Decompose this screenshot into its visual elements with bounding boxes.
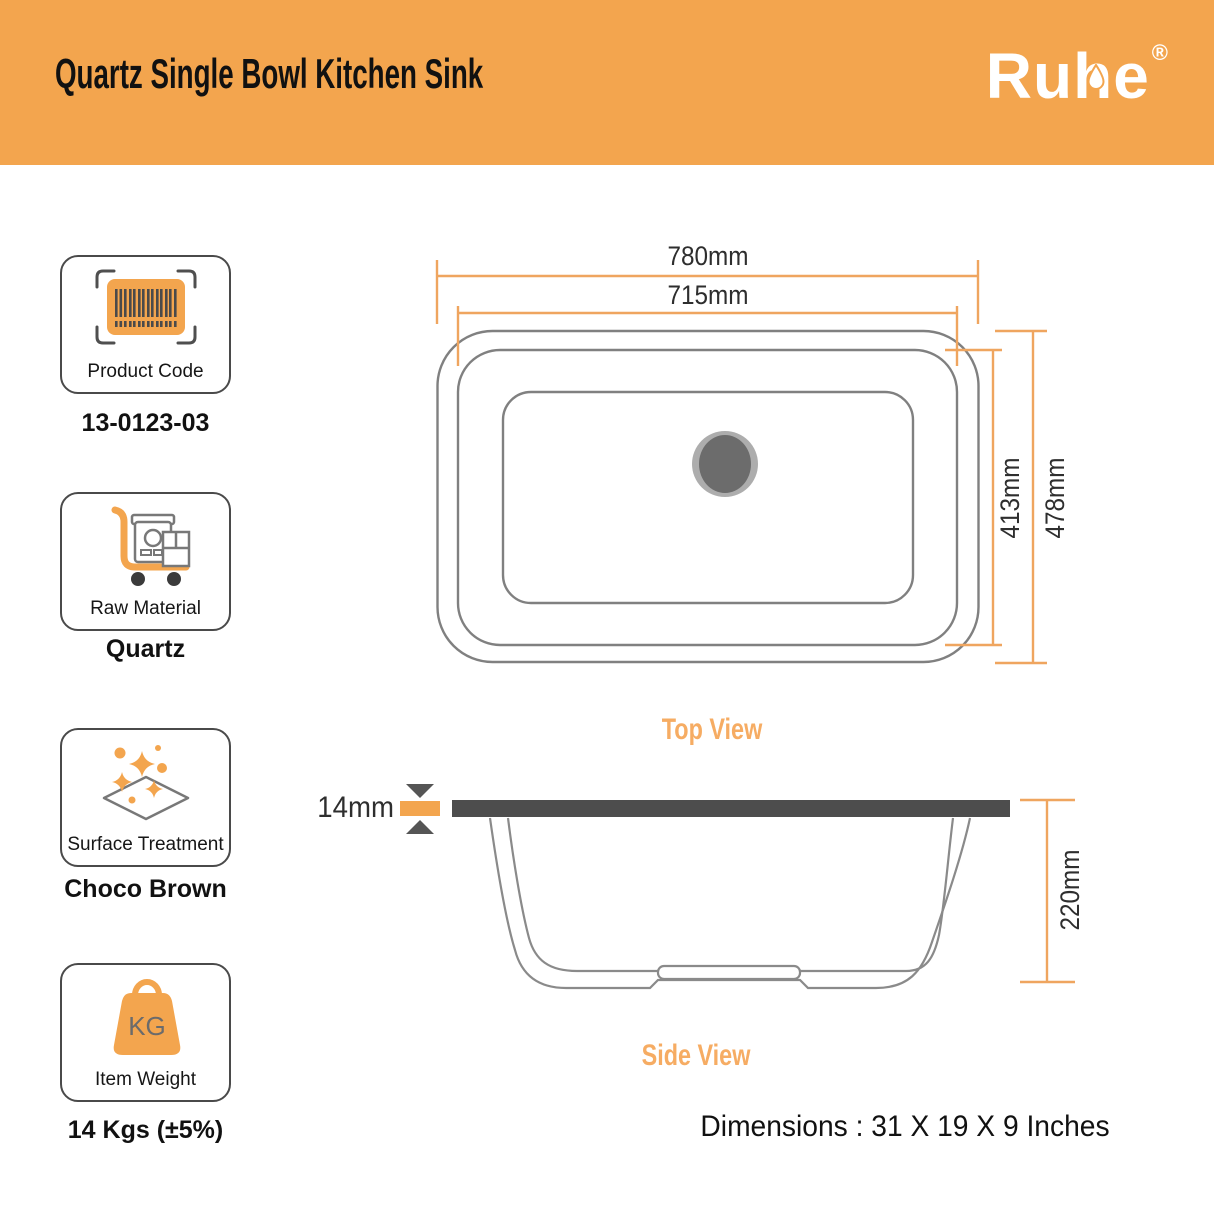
arrow-up-icon bbox=[406, 820, 434, 834]
dim-label-inner-height: 413mm bbox=[995, 444, 1025, 552]
registered-mark: ® bbox=[1152, 40, 1168, 65]
spec-card-surface-treatment: Surface Treatment bbox=[60, 728, 231, 867]
dim-label-outer-width: 780mm bbox=[641, 242, 776, 270]
spec-label-item-weight: Item Weight bbox=[62, 1069, 229, 1091]
spec-card-raw-material: Raw Material bbox=[60, 492, 231, 631]
spec-label-product-code: Product Code bbox=[62, 361, 229, 383]
weight-kg-icon: KG bbox=[91, 973, 201, 1065]
spec-value-surface-treatment: Choco Brown bbox=[50, 875, 241, 904]
thickness-marker bbox=[400, 801, 440, 816]
kg-icon-text: KG bbox=[128, 1011, 166, 1041]
water-drop-icon bbox=[1087, 64, 1105, 90]
top-view-dimension-lines bbox=[437, 260, 1047, 663]
side-view-drawing bbox=[400, 784, 1075, 988]
page-title: Quartz Single Bowl Kitchen Sink bbox=[55, 50, 483, 98]
dim-label-rim-thickness: 14mm bbox=[262, 792, 394, 824]
spec-label-surface-treatment: Surface Treatment bbox=[62, 834, 229, 856]
barcode-icon bbox=[91, 265, 201, 349]
product-spec-sheet: Quartz Single Bowl Kitchen Sink Ruhe® bbox=[0, 0, 1214, 1214]
dim-label-bowl-depth: 220mm bbox=[1055, 836, 1085, 944]
bowl-profile bbox=[490, 818, 970, 988]
spec-card-item-weight: KG Item Weight bbox=[60, 963, 231, 1102]
top-view-drawing bbox=[438, 331, 979, 662]
top-view-label: Top View bbox=[634, 713, 790, 747]
brand-logo: Ruhe® bbox=[986, 36, 1168, 116]
brand-name: Ruhe bbox=[986, 40, 1150, 112]
dim-label-outer-height: 478mm bbox=[1040, 444, 1070, 552]
header-banner: Quartz Single Bowl Kitchen Sink Ruhe® bbox=[0, 0, 1214, 165]
dim-label-inner-width: 715mm bbox=[641, 281, 776, 309]
arrow-down-icon bbox=[406, 784, 434, 798]
spec-card-product-code: Product Code bbox=[60, 255, 231, 394]
spec-value-product-code: 13-0123-03 bbox=[50, 409, 241, 438]
drain-icon bbox=[692, 431, 758, 497]
material-trolley-icon bbox=[91, 502, 201, 590]
spec-value-raw-material: Quartz bbox=[50, 635, 241, 664]
spec-label-raw-material: Raw Material bbox=[62, 598, 229, 620]
side-view-label: Side View bbox=[618, 1039, 774, 1073]
spec-value-item-weight: 14 Kgs (±5%) bbox=[50, 1116, 241, 1145]
rim-profile-bar bbox=[452, 800, 1010, 817]
overall-dimensions-text: Dimensions : 31 X 19 X 9 Inches bbox=[670, 1110, 1140, 1144]
sparkle-diamond-icon bbox=[91, 738, 201, 828]
